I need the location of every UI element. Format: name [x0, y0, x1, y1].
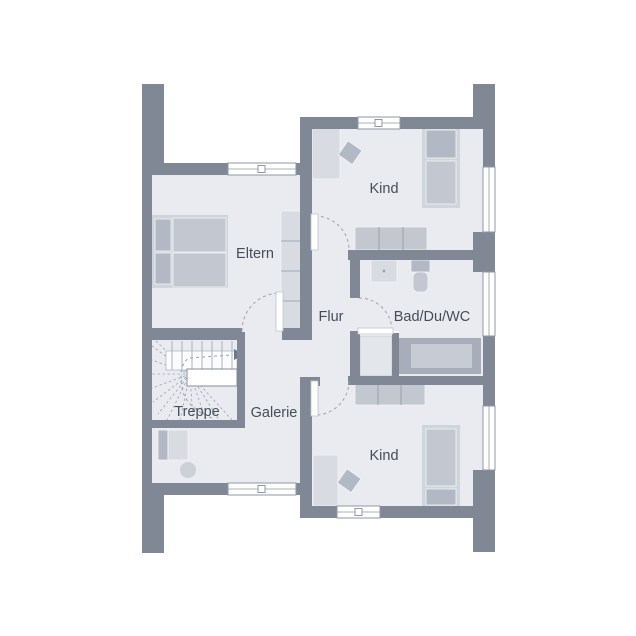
plant: [180, 462, 196, 478]
wall-center-vertical: [300, 117, 312, 332]
floor-plan: Eltern Kind Bad/Du/WC Flur Treppe Galeri…: [0, 0, 636, 636]
bathtub-basin: [411, 344, 472, 368]
bed-pillow: [155, 253, 171, 284]
room-label-flur: Flur: [319, 309, 344, 325]
bed-mattress: [173, 253, 226, 287]
wall-right-strip-top: [473, 84, 495, 129]
sideboard: [355, 227, 427, 250]
wall-eltern-bottom-right: [282, 328, 312, 340]
door-opening-kind-bottom: [320, 377, 348, 385]
door-leaf-kind-top: [311, 214, 318, 250]
toilet-tank: [411, 260, 430, 272]
window-kind-bottom-right: [483, 406, 495, 470]
bed-mattress: [173, 218, 226, 252]
wall-shower-partition: [392, 333, 399, 377]
window-bad-right: [483, 272, 495, 336]
desk: [312, 127, 340, 179]
toilet-bowl: [413, 272, 428, 292]
window-kind-top-right: [483, 167, 495, 232]
room-label-eltern: Eltern: [236, 246, 274, 262]
wall-kind-bottom-left: [300, 377, 312, 518]
wall-bad-bottom: [348, 376, 483, 385]
room-label-bad: Bad/Du/WC: [394, 309, 471, 325]
sideboard: [168, 430, 188, 460]
sideboard-side: [158, 430, 168, 460]
room-label-kind-bottom: Kind: [369, 448, 398, 464]
wall-stairs-right: [237, 332, 245, 428]
wardrobe: [355, 384, 425, 405]
stair-landing: [187, 369, 237, 386]
door-leaf-eltern: [276, 292, 283, 331]
room-label-treppe: Treppe: [174, 404, 219, 420]
room-label-kind-top: Kind: [369, 181, 398, 197]
stair-upper-flight: [166, 351, 237, 370]
wall-bad-left-lower: [350, 331, 360, 377]
bed-pillow: [426, 489, 456, 505]
door-opening-bad: [350, 298, 360, 331]
floor-plan-drawing: Eltern Kind Bad/Du/WC Flur Treppe Galeri…: [0, 0, 636, 636]
room-label-galerie: Galerie: [251, 405, 298, 421]
window-galerie-bottom: [228, 483, 296, 495]
wall-eltern-bottom-left: [142, 328, 242, 340]
wall-left-strip-top: [142, 84, 164, 175]
bed-pillow: [155, 219, 171, 251]
window-kind-top: [358, 117, 400, 129]
bed-mattress: [426, 429, 456, 486]
wardrobe: [281, 211, 302, 330]
bed-pillow: [426, 130, 456, 158]
bed-mattress: [426, 161, 456, 204]
desk: [313, 455, 338, 506]
door-leaf-bad: [358, 328, 393, 334]
window-kind-bottom-bottom: [337, 506, 380, 518]
shower: [360, 336, 392, 376]
wall-kind-flur-separator: [348, 250, 483, 260]
wall-bad-left-upper: [350, 260, 360, 298]
door-leaf-kind-bottom: [311, 381, 318, 416]
window-eltern-top: [228, 163, 296, 175]
wall-stairs-bottom: [142, 420, 245, 428]
wall-kind-bottom: [300, 506, 483, 518]
sink-drain: [383, 270, 386, 273]
